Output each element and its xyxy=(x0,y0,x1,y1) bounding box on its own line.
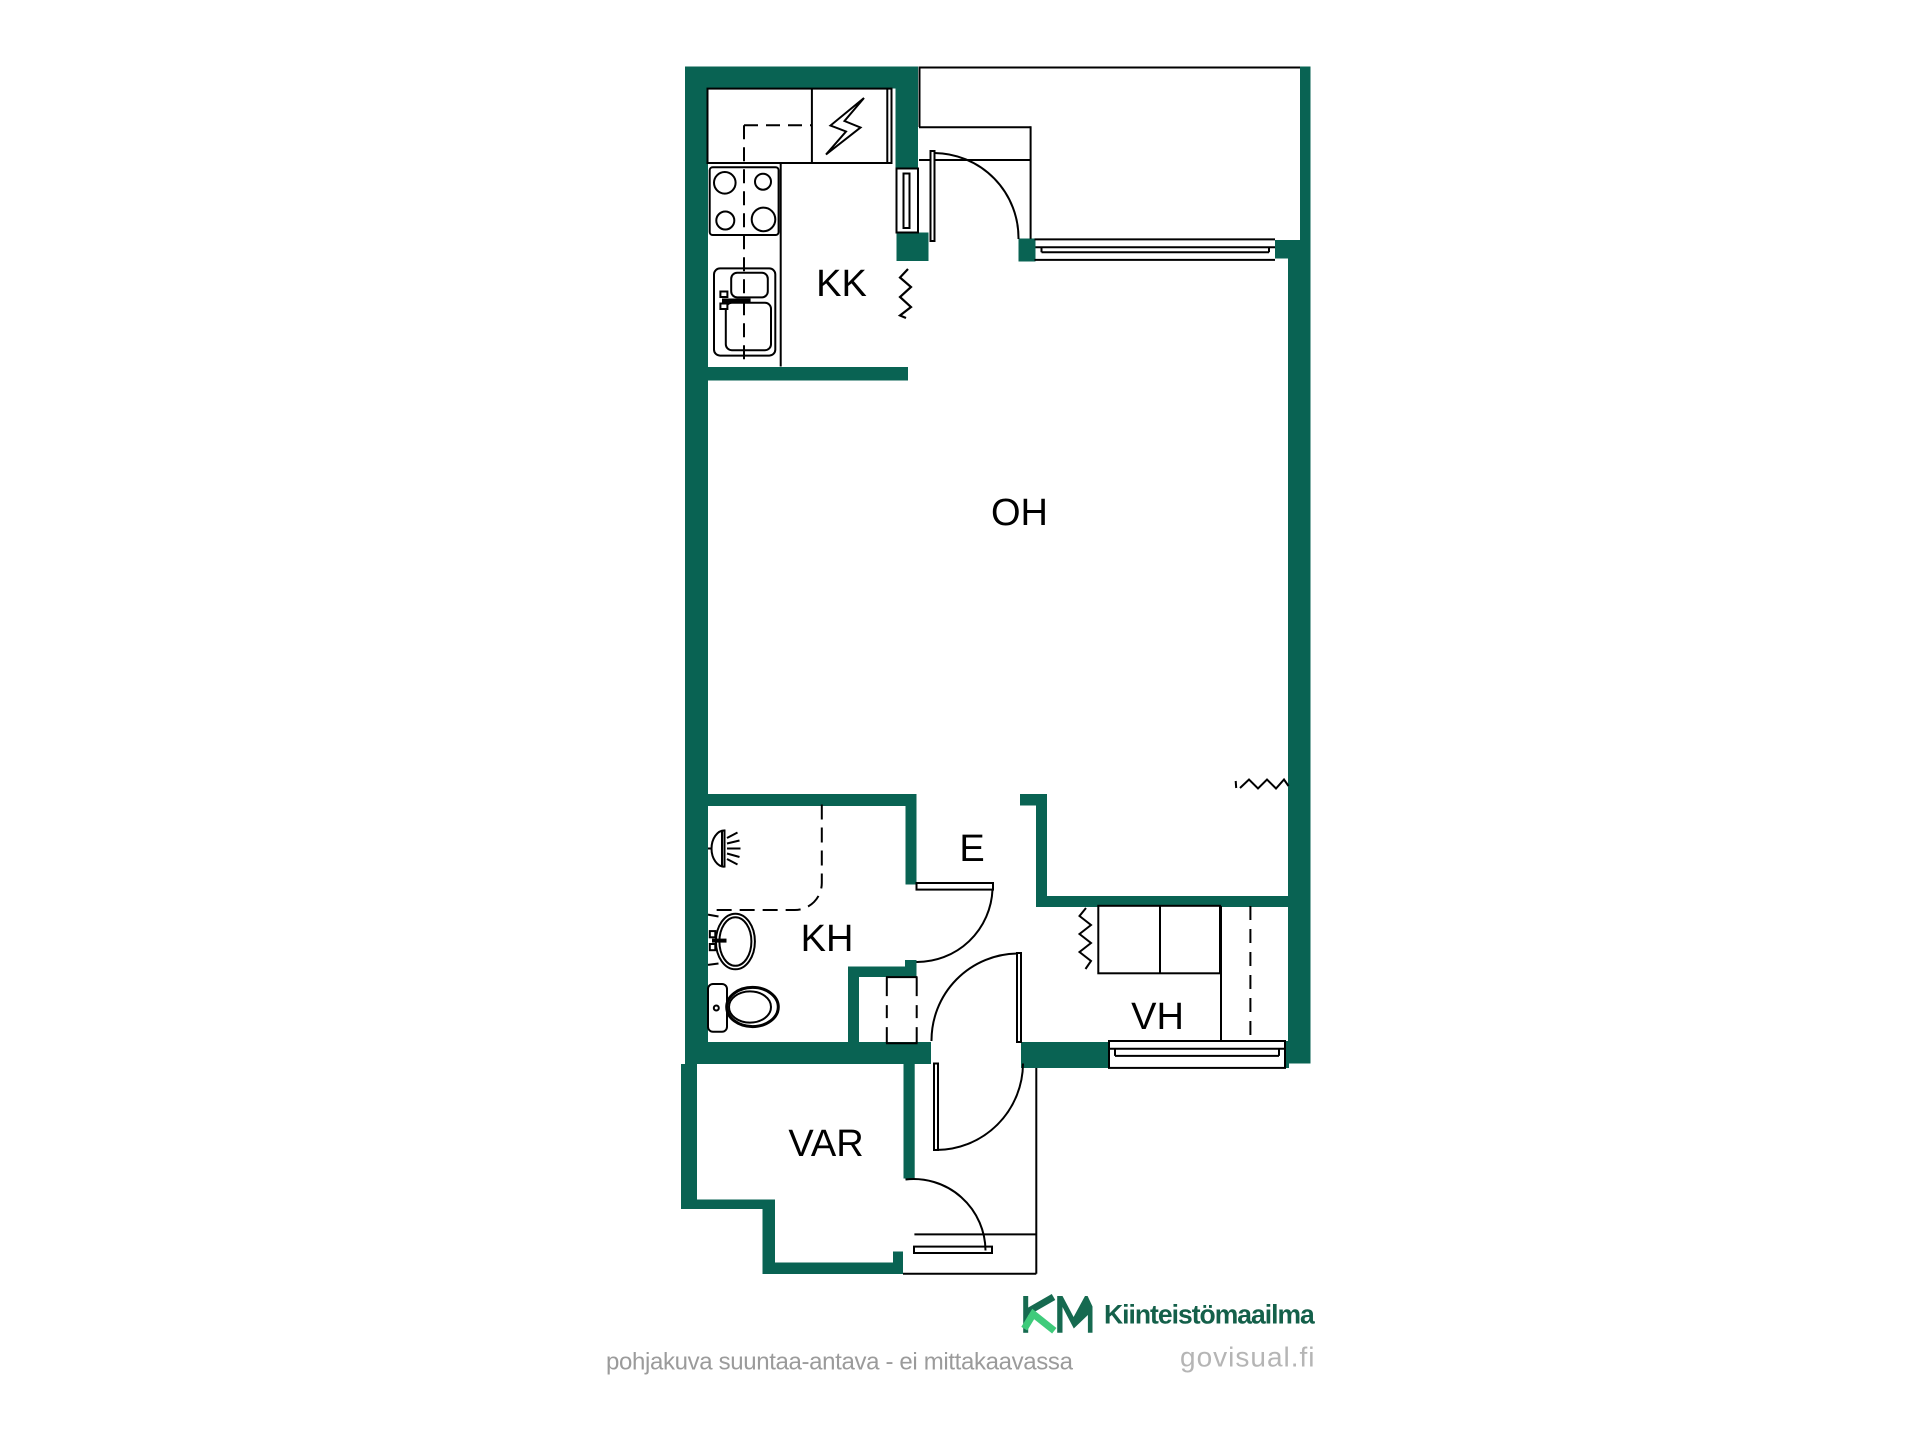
svg-text:govisual.fi: govisual.fi xyxy=(1180,1342,1316,1373)
svg-text:pohjakuva suuntaa-antava - ei: pohjakuva suuntaa-antava - ei mittakaava… xyxy=(606,1349,1074,1376)
svg-text:VAR: VAR xyxy=(788,1123,863,1165)
svg-text:E: E xyxy=(959,828,984,870)
svg-text:VH: VH xyxy=(1131,996,1184,1038)
svg-text:KK: KK xyxy=(816,263,867,305)
svg-text:KH: KH xyxy=(801,918,854,960)
svg-text:Kiinteistömaailma: Kiinteistömaailma xyxy=(1104,1300,1315,1330)
svg-text:OH: OH xyxy=(991,492,1048,534)
